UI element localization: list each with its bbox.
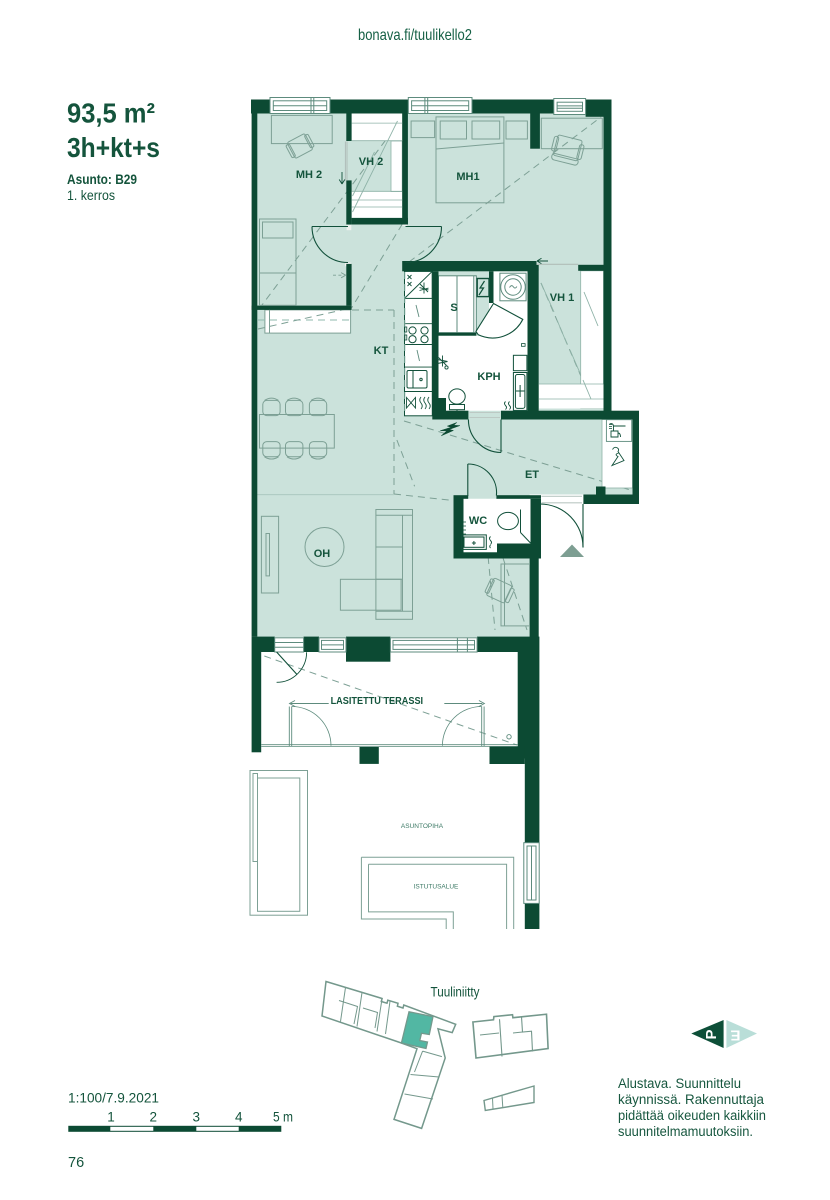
svg-text:76: 76 <box>68 1155 84 1171</box>
svg-text:KT: KT <box>374 345 389 357</box>
svg-text:2: 2 <box>150 1110 158 1125</box>
svg-text:OH: OH <box>314 548 331 560</box>
svg-text:4: 4 <box>235 1110 243 1125</box>
svg-text:3: 3 <box>193 1110 201 1125</box>
svg-text:MH 2: MH 2 <box>296 169 322 181</box>
svg-text:VH 1: VH 1 <box>550 292 574 304</box>
svg-text:ISTUTUSALUE: ISTUTUSALUE <box>414 884 459 891</box>
svg-text:suunnitelmamuutoksiin.: suunnitelmamuutoksiin. <box>618 1124 753 1139</box>
svg-text:ET: ET <box>525 469 539 481</box>
svg-text:pidättää oikeuden kaikkiin: pidättää oikeuden kaikkiin <box>618 1108 766 1123</box>
svg-text:E: E <box>730 1027 740 1044</box>
svg-text:3h+kt+s: 3h+kt+s <box>67 132 160 163</box>
svg-text:Tuuliniitty: Tuuliniitty <box>431 985 480 1000</box>
svg-text:Alustava. Suunnittelu: Alustava. Suunnittelu <box>618 1076 741 1091</box>
svg-text:S: S <box>450 302 457 314</box>
svg-text:WC: WC <box>469 515 487 527</box>
svg-text:1:100/7.9.2021: 1:100/7.9.2021 <box>68 1090 159 1106</box>
svg-text:MH1: MH1 <box>456 171 479 183</box>
svg-text:Asunto: B29: Asunto: B29 <box>67 171 137 187</box>
svg-text:1: 1 <box>107 1110 115 1125</box>
svg-text:KPH: KPH <box>477 371 500 383</box>
svg-text:ASUNTOPIHA: ASUNTOPIHA <box>401 823 444 830</box>
svg-text:LASITETTU TERASSI: LASITETTU TERASSI <box>331 696 424 707</box>
svg-text:5 m: 5 m <box>273 1110 293 1125</box>
svg-text:bonava.fi/tuulikello2: bonava.fi/tuulikello2 <box>358 27 472 44</box>
svg-text:1. kerros: 1. kerros <box>67 187 115 203</box>
svg-text:VH 2: VH 2 <box>359 156 383 168</box>
svg-text:P: P <box>703 1029 720 1039</box>
svg-text:käynnissä. Rakennuttaja: käynnissä. Rakennuttaja <box>618 1092 764 1107</box>
svg-text:93,5 m²: 93,5 m² <box>67 98 155 129</box>
